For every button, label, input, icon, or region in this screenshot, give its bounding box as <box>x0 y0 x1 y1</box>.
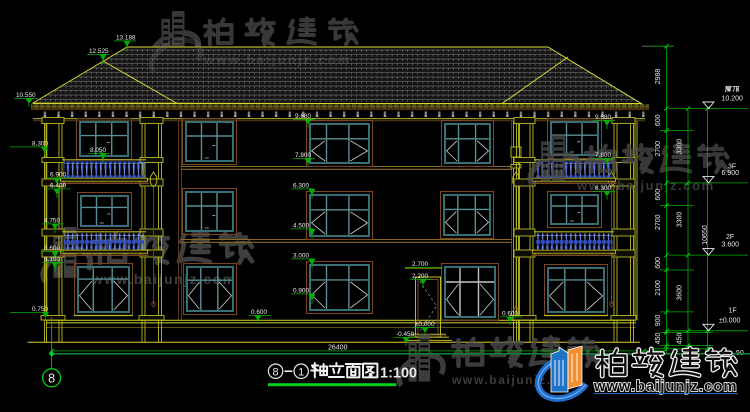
svg-text:900: 900 <box>655 314 662 326</box>
svg-text:1:100: 1:100 <box>380 366 417 382</box>
svg-text:3.000: 3.000 <box>293 253 309 260</box>
svg-text:13.188: 13.188 <box>116 35 136 42</box>
svg-text:0.600: 0.600 <box>251 309 267 316</box>
svg-text:0.600: 0.600 <box>502 311 518 318</box>
svg-text:450: 450 <box>655 333 662 345</box>
svg-text:www.baijunjz.com: www.baijunjz.com <box>203 52 351 67</box>
svg-text:10.550: 10.550 <box>16 92 36 99</box>
svg-text:0.900: 0.900 <box>293 288 309 295</box>
svg-text:8.050: 8.050 <box>90 147 106 154</box>
svg-text:2100: 2100 <box>655 280 662 296</box>
svg-text:±0.000: ±0.000 <box>719 318 740 325</box>
svg-text:9.680: 9.680 <box>295 113 311 120</box>
svg-text:6.300: 6.300 <box>595 185 611 192</box>
svg-text:7.800: 7.800 <box>295 152 311 159</box>
svg-text:9.680: 9.680 <box>595 114 611 121</box>
svg-text:600: 600 <box>655 257 662 269</box>
svg-text:www.baijunjz.com: www.baijunjz.com <box>593 379 738 395</box>
svg-text:8: 8 <box>273 366 279 378</box>
svg-text:6.900: 6.900 <box>50 172 66 179</box>
svg-text:8.300: 8.300 <box>32 141 48 148</box>
svg-text:7.800: 7.800 <box>595 152 611 159</box>
svg-text:12.525: 12.525 <box>89 48 109 55</box>
svg-text:1F: 1F <box>729 308 737 315</box>
svg-text:±0.000: ±0.000 <box>415 321 435 328</box>
svg-text:600: 600 <box>655 114 662 126</box>
svg-text:10.200: 10.200 <box>722 96 744 103</box>
svg-text:2.700: 2.700 <box>412 261 428 268</box>
svg-text:3.100: 3.100 <box>44 256 60 263</box>
svg-text:0.750: 0.750 <box>32 306 48 313</box>
svg-text:3.600: 3.600 <box>722 241 740 248</box>
svg-text:8: 8 <box>48 371 55 385</box>
svg-text:6.900: 6.900 <box>722 170 740 177</box>
svg-text:450: 450 <box>677 333 684 345</box>
svg-text:2.200: 2.200 <box>412 273 428 280</box>
svg-text:10650: 10650 <box>702 225 709 245</box>
svg-text:-0.450: -0.450 <box>396 331 415 338</box>
svg-text:4.500: 4.500 <box>293 223 309 230</box>
svg-text:2700: 2700 <box>655 214 662 230</box>
svg-text:600: 600 <box>655 189 662 201</box>
svg-text:6.400: 6.400 <box>50 183 66 190</box>
svg-text:4.750: 4.750 <box>44 218 60 225</box>
svg-text:2988: 2988 <box>655 69 662 85</box>
svg-text:26400: 26400 <box>328 345 348 352</box>
svg-text:2700: 2700 <box>655 141 662 157</box>
svg-text:3600: 3600 <box>677 285 684 301</box>
svg-text:3300: 3300 <box>677 212 684 228</box>
svg-text:3.600: 3.600 <box>44 245 60 252</box>
svg-text:2F: 2F <box>726 234 734 241</box>
svg-text:3300: 3300 <box>677 139 684 155</box>
svg-text:6.300: 6.300 <box>293 183 309 190</box>
svg-text:1: 1 <box>298 366 304 378</box>
